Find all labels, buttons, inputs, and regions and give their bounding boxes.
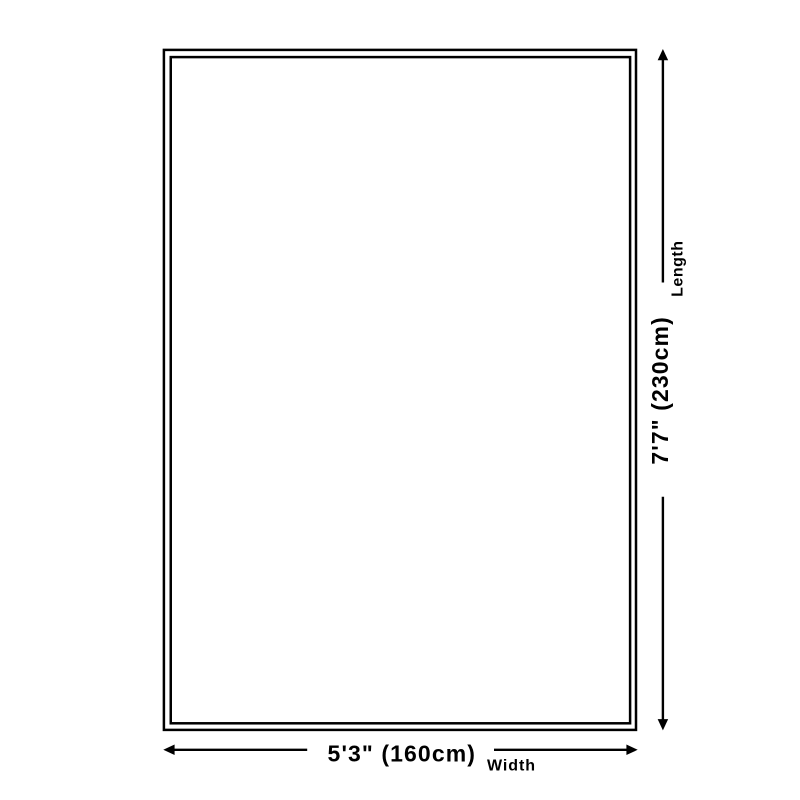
svg-text:5'3" (160cm): 5'3" (160cm) (328, 740, 476, 766)
svg-text:Width: Width (487, 758, 536, 775)
svg-text:7'7" (230cm): 7'7" (230cm) (647, 316, 673, 464)
svg-text:Length: Length (669, 241, 686, 297)
